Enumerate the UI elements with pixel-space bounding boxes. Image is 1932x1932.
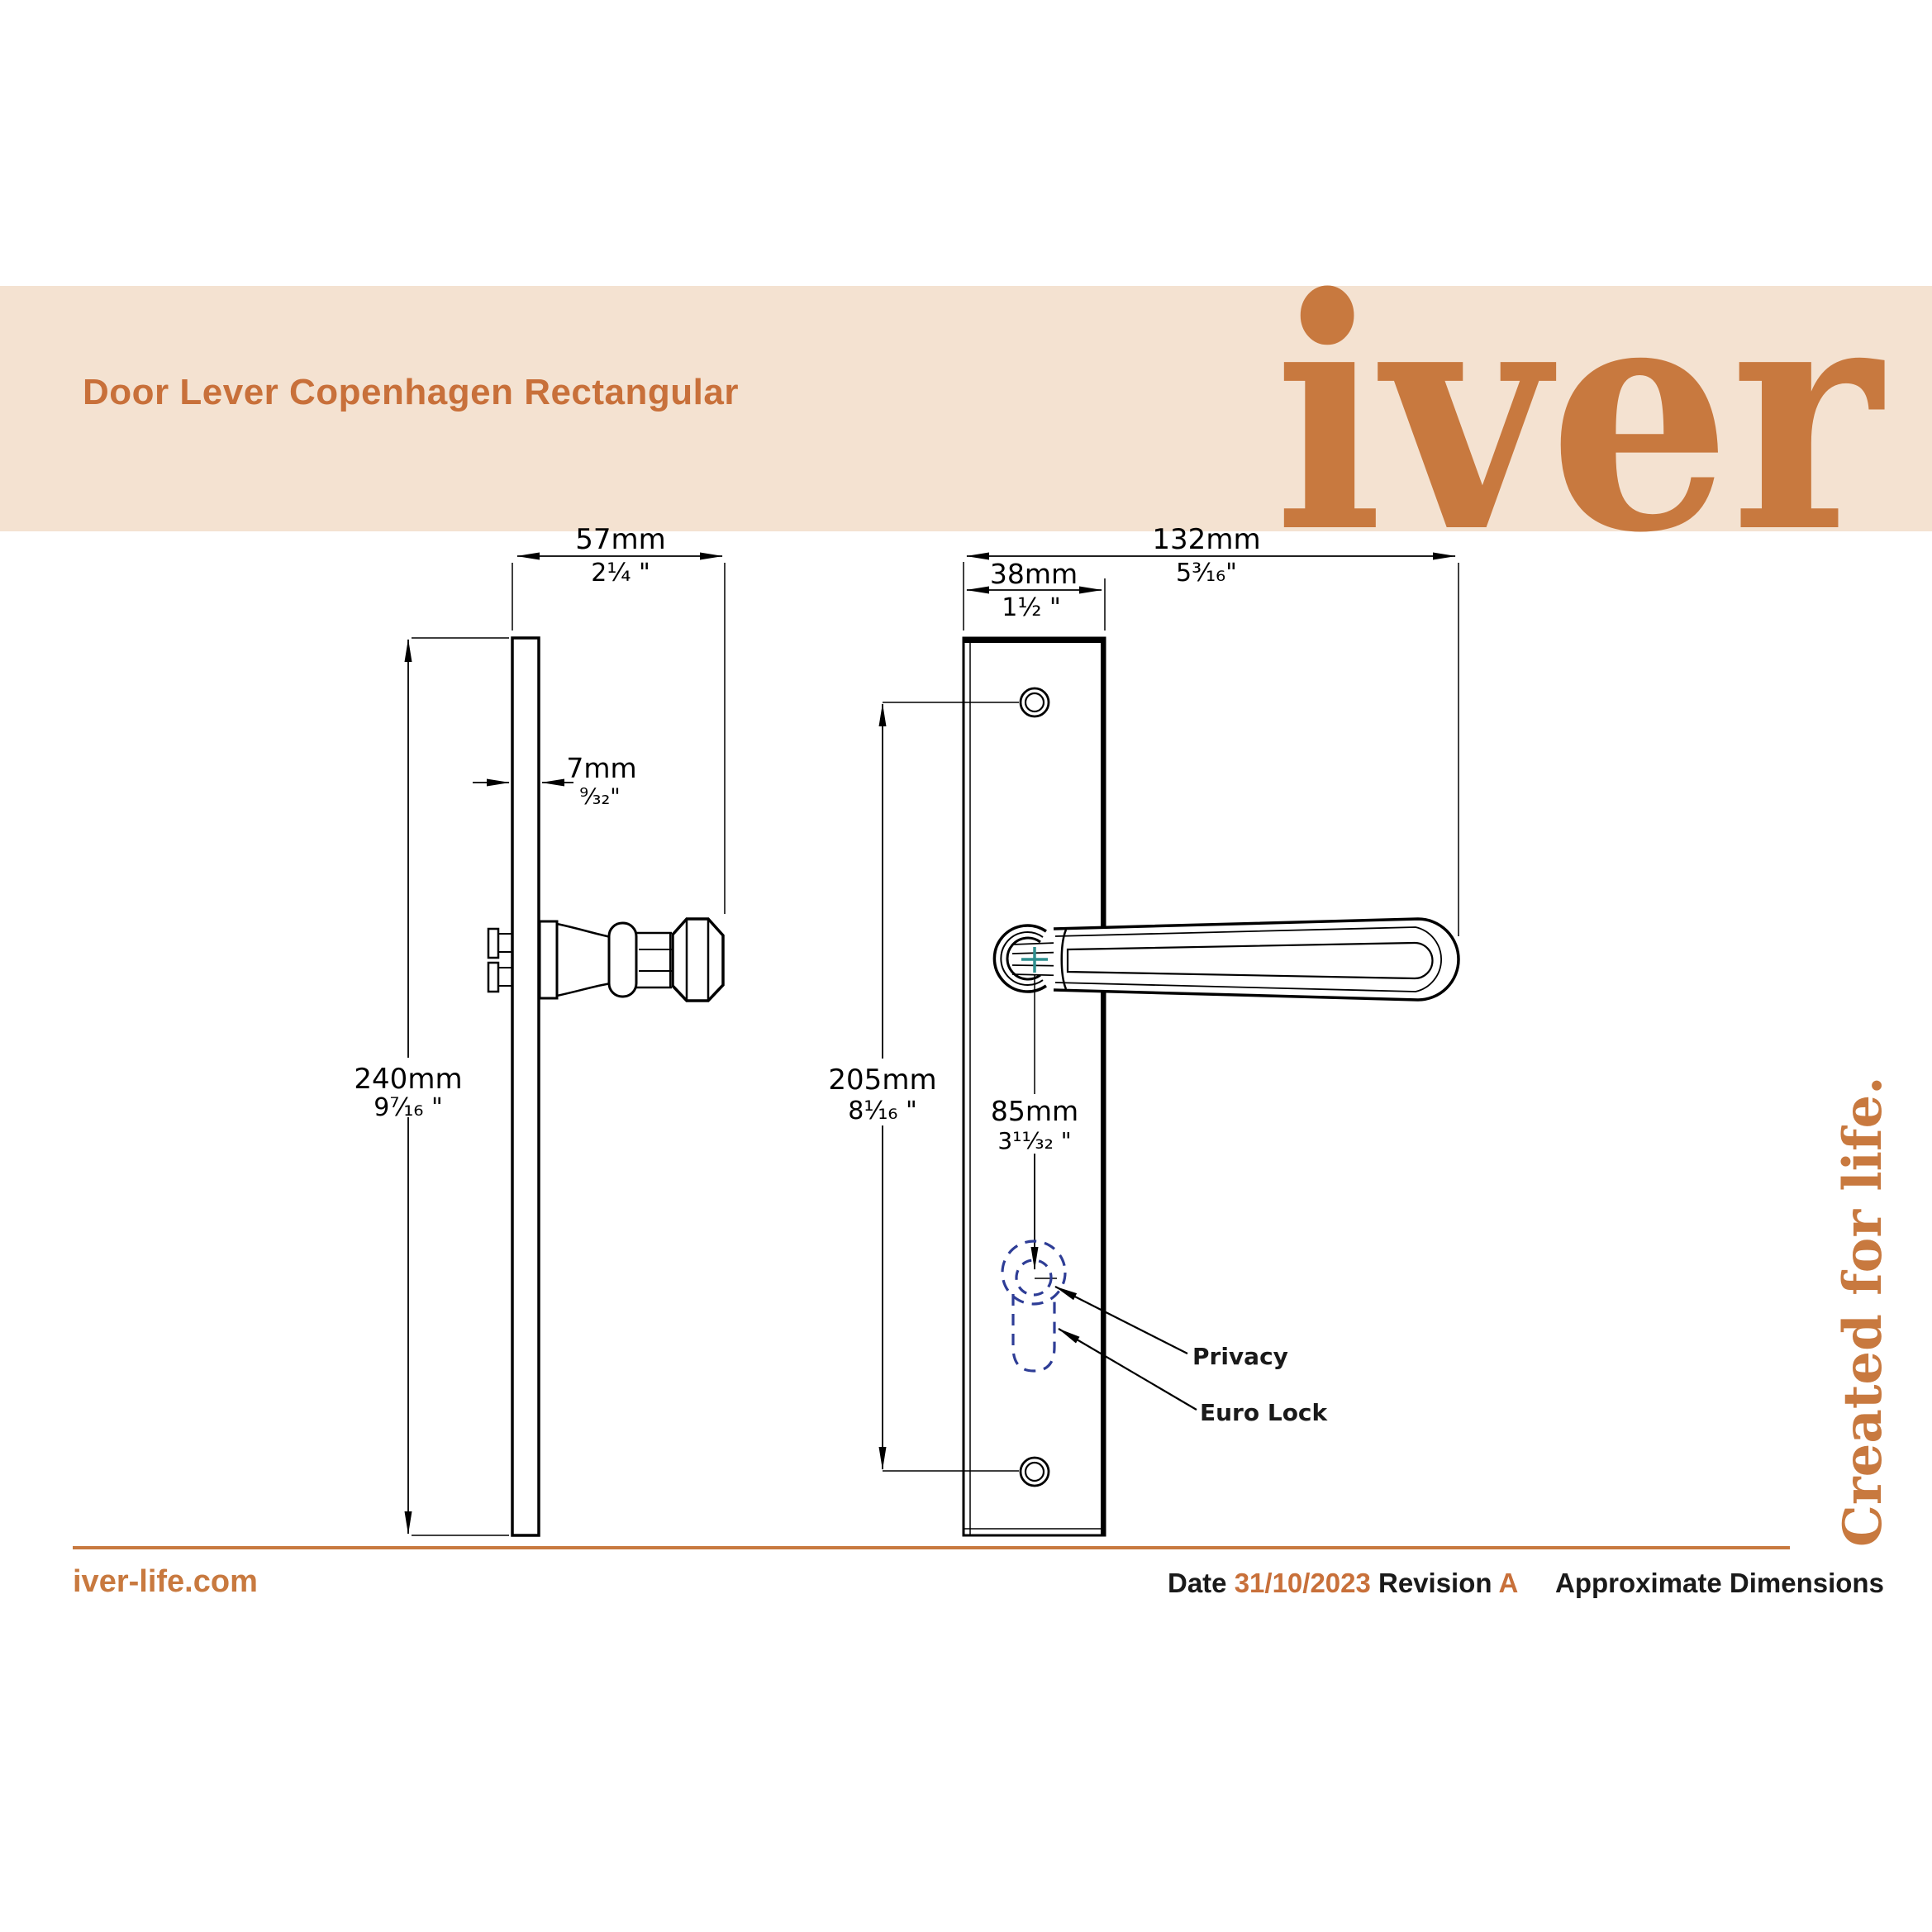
side-plate	[512, 638, 539, 1535]
dim-132mm-label: 132mm	[1152, 523, 1260, 556]
revision-label: Revision	[1378, 1568, 1492, 1598]
fixing-screws	[488, 929, 512, 992]
front-view: 132mm 5³⁄₁₆" 38mm 1½ " 205mm 8¹⁄₁₆ " 85m…	[828, 523, 1459, 1535]
side-view: 57mm 2¼ " 7mm ⁹⁄₃₂" 240mm 9⁷⁄₁₆ "	[354, 523, 725, 1535]
screw-hole-top	[1021, 688, 1049, 716]
lever-knob-end	[673, 919, 723, 1001]
date-value: 31/10/2023	[1235, 1568, 1371, 1598]
dim-57mm-label: 57mm	[575, 523, 666, 556]
dim-240mm-label: 240mm	[354, 1063, 462, 1096]
dim-38mm-inches: 1½ "	[1002, 593, 1061, 622]
date-label: Date	[1168, 1568, 1227, 1598]
lever-arm	[1054, 919, 1459, 1000]
footer-date: Date 31/10/2023	[1168, 1568, 1371, 1599]
screw-hole-bottom	[1021, 1458, 1049, 1486]
dim-205mm-inches: 8¹⁄₁₆ "	[848, 1097, 917, 1125]
dim-7mm-inches: ⁹⁄₃₂"	[579, 784, 620, 810]
dim-85mm-inches: 3¹¹⁄₃₂ "	[997, 1127, 1071, 1154]
website-link[interactable]: iver-life.com	[73, 1564, 258, 1600]
dim-132mm-inches: 5³⁄₁₆"	[1176, 559, 1237, 588]
dim-240mm-inches: 9⁷⁄₁₆ "	[374, 1093, 443, 1122]
lever-side-profile	[540, 919, 723, 1001]
dim-205mm-label: 205mm	[828, 1064, 936, 1097]
revision-value: A	[1499, 1568, 1519, 1598]
spec-sheet-page: { "colors": { "accent_orange": "#C8793F"…	[0, 0, 1932, 1932]
dim-57mm-inches: 2¼ "	[591, 559, 650, 588]
dim-38mm-label: 38mm	[990, 558, 1078, 590]
footer-note: Approximate Dimensions	[1555, 1568, 1884, 1599]
dim-7mm-label: 7mm	[566, 752, 636, 784]
footer-rule	[73, 1546, 1790, 1549]
technical-drawing: 57mm 2¼ " 7mm ⁹⁄₃₂" 240mm 9⁷⁄₁₆ "	[0, 0, 1932, 1932]
dim-85mm-label: 85mm	[991, 1095, 1078, 1127]
privacy-label: Privacy	[1192, 1343, 1288, 1370]
footer-revision: Revision A	[1378, 1568, 1518, 1599]
euro-lock-label: Euro Lock	[1200, 1399, 1329, 1426]
